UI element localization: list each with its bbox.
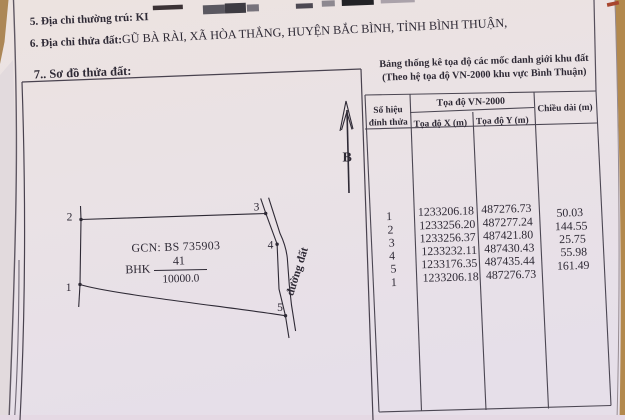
svg-text:2: 2: [387, 222, 393, 236]
svg-text:4: 4: [389, 248, 395, 262]
svg-text:Số hiệu: Số hiệu: [373, 104, 402, 116]
svg-text:Tọa độ VN-2000: Tọa độ VN-2000: [436, 96, 505, 109]
svg-text:50.03: 50.03: [556, 205, 583, 220]
svg-text:Tọa độ X (m): Tọa độ X (m): [414, 117, 468, 129]
svg-text:BHK: BHK: [125, 262, 151, 277]
svg-text:487276.73: 487276.73: [486, 267, 537, 282]
svg-text:Chiều dài (m): Chiều dài (m): [537, 102, 593, 115]
svg-text:55.98: 55.98: [560, 244, 587, 259]
svg-text:5: 5: [390, 261, 396, 275]
svg-text:41: 41: [173, 253, 185, 267]
svg-text:Tọa độ Y (m): Tọa độ Y (m): [476, 115, 529, 127]
svg-text:1: 1: [66, 282, 72, 294]
svg-text:3: 3: [389, 235, 395, 249]
svg-text:đỉnh thửa: đỉnh thửa: [369, 118, 409, 129]
svg-text:4: 4: [268, 240, 274, 252]
svg-text:5: 5: [277, 302, 283, 314]
svg-text:10000.0: 10000.0: [162, 272, 200, 285]
svg-text:2: 2: [67, 212, 73, 224]
svg-text:1233206.18: 1233206.18: [422, 269, 478, 284]
svg-text:GCN: BS 735903: GCN: BS 735903: [131, 238, 220, 255]
svg-text:B: B: [343, 151, 352, 166]
svg-text:1: 1: [391, 275, 397, 289]
svg-text:3: 3: [254, 202, 260, 214]
svg-text:1: 1: [386, 209, 392, 223]
svg-text:161.49: 161.49: [557, 258, 590, 273]
